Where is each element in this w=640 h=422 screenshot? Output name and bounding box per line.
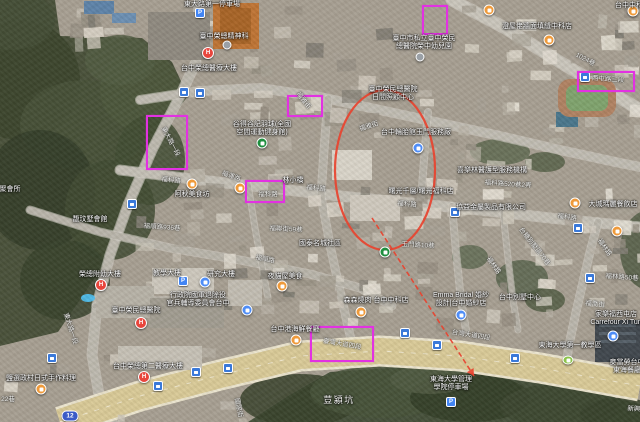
street-label: 台灣大道四段 xyxy=(451,329,491,343)
poi-label[interactable]: 台中榮總醫療大樓 xyxy=(181,65,237,73)
poi-label[interactable]: 台中別墅中心 xyxy=(499,294,541,302)
street-label: 福雅街 xyxy=(294,91,312,111)
street-label: 台糖別墅區70巷 xyxy=(517,226,551,267)
street-label: 福科路 xyxy=(397,200,417,209)
street-label: 福科路 xyxy=(161,176,181,186)
poi-label[interactable]: 臺中榮民總醫院 xyxy=(112,307,161,315)
poi-label[interactable]: 澄屋佬牆面填縫中科店 xyxy=(502,23,572,31)
street-label: 22巷 xyxy=(1,396,15,404)
poi-label[interactable]: 麥當勞台中東海餐廳 xyxy=(610,359,640,376)
poi-label[interactable]: 台中港海鮮餐廳 xyxy=(271,326,320,334)
street-label: 東大路一段 xyxy=(61,312,78,345)
poi-label[interactable]: 鹽選政村日式手作料理 xyxy=(6,375,76,383)
street-label: 臺灣大道四段 xyxy=(322,338,362,352)
poi-label[interactable]: Emma Bridal 婚紗設計|台中婚紗店 xyxy=(433,292,489,309)
street-label: 福運路 xyxy=(221,170,242,184)
poi-label[interactable]: 教學大樓 xyxy=(153,270,181,278)
street-label: 福科路 xyxy=(258,191,278,199)
street-label: 福科路520巷2弄 xyxy=(484,179,531,190)
label-layer: 東大路第一停車場臺中榮總精神科台中榮總醫療大樓臺中市私立臺中榮民總醫院榮中幼兒園… xyxy=(0,0,640,422)
poi-label[interactable]: 研究大樓 xyxy=(207,271,235,279)
street-label: 福林路50巷 xyxy=(605,273,639,283)
poi-label[interactable]: 林小橋 xyxy=(283,177,304,185)
street-label: 福科路 xyxy=(306,184,326,194)
poi-label[interactable]: 森森燒肉 台中中科店 xyxy=(344,297,409,305)
street-label: 西屯路三段 xyxy=(592,75,625,85)
poi-label[interactable]: 臺中榮民總醫院日間照顧中心 xyxy=(369,86,418,103)
poi-label[interactable]: 台中中科 xyxy=(615,2,640,10)
poi-label[interactable]: 喜樂林醫護型服務機構 xyxy=(457,167,527,175)
poi-label[interactable]: 東大路第一停車場 xyxy=(184,1,240,9)
street-label: 福雅街 xyxy=(359,120,380,133)
poi-label[interactable]: 曙光千層/曙光福科店 xyxy=(389,188,454,196)
area-label: 荳潁坑 xyxy=(323,395,355,406)
street-label: 新興路 xyxy=(627,405,640,414)
poi-label[interactable]: 行政院國軍退除役官兵輔導委員會台中 xyxy=(167,292,230,309)
street-label: 玉門路10巷 xyxy=(401,241,435,250)
poi-label[interactable]: 臺中榮總精神科 xyxy=(200,33,249,41)
poi-label[interactable]: 台中輪胎館玉門服務廠 xyxy=(381,129,451,137)
street-label: 1024巷 xyxy=(574,52,596,69)
poi-label[interactable]: 夜貓屋美食 xyxy=(268,273,303,281)
street-label: 福喬街 xyxy=(585,300,605,310)
poi-label[interactable]: 馥玟墅會館 xyxy=(73,216,108,224)
street-label: 福順路 xyxy=(255,254,276,266)
street-label: 福林路 xyxy=(484,256,501,276)
street-label: 國際街 xyxy=(232,397,244,418)
poi-label[interactable]: 東海大學第一教學區 xyxy=(539,342,602,350)
poi-label[interactable]: 國泰名城社區 xyxy=(299,240,341,248)
poi-label[interactable]: 東海大學管理學院停車場 xyxy=(430,376,472,393)
poi-label[interactable]: 台中榮總第二醫療大樓 xyxy=(113,363,183,371)
poi-label[interactable]: 谷得谷記羽球(全國空間運動健身館) xyxy=(233,121,291,138)
street-label: 福林路 xyxy=(595,238,612,258)
poi-label[interactable]: 家樂福西屯店Carrefour Xi Tun xyxy=(590,311,640,328)
poi-label[interactable]: 臺中市私立臺中榮民總醫院榮中幼兒園 xyxy=(393,35,456,52)
satellite-map-canvas[interactable]: HHHHPPP12 東大路第一停車場臺中榮總精神科台中榮總醫療大樓臺中市私立臺中… xyxy=(0,0,640,422)
street-label: 福聯街59巷 xyxy=(269,225,303,234)
poi-label[interactable]: 協益金屬製品有限公司 xyxy=(456,204,526,212)
street-label: 福順路936巷 xyxy=(143,223,180,233)
street-label: 東大路一段 xyxy=(159,126,181,158)
poi-label[interactable]: 大城瑪麗餐飲店 xyxy=(589,201,638,209)
poi-label[interactable]: 榮總附幼大樓 xyxy=(79,271,121,279)
street-label: 福科路 xyxy=(557,213,577,223)
poi-label[interactable]: 聚會所 xyxy=(0,186,21,194)
poi-label[interactable]: 阿秋美食坊 xyxy=(175,191,210,199)
